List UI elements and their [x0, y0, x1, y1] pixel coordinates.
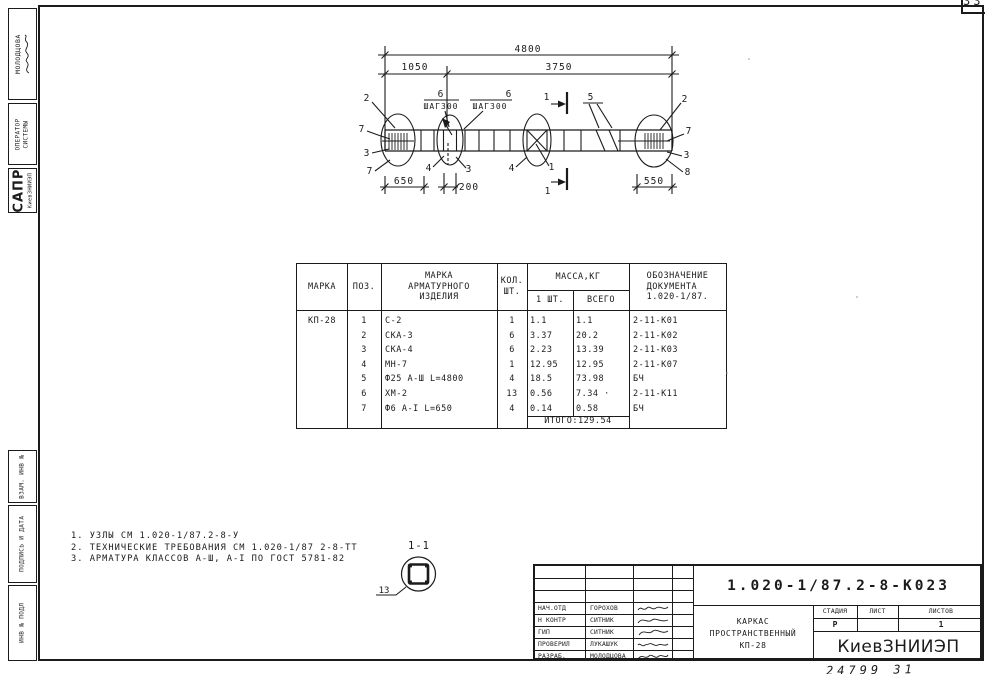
col-header-massa-vsego: ВСЕГО — [573, 290, 629, 310]
notes-block: 1. УЗЛЫ СМ 1.020-1/87.2-8-У 2. ТЕХНИЧЕСК… — [71, 531, 358, 566]
signature-scribble — [634, 626, 672, 638]
col-kol-values: 166 1413 4 — [497, 314, 527, 416]
step-note-1: ШАГ300 — [424, 102, 459, 111]
callout-7-right: 7 — [686, 126, 693, 137]
corner-box-hline — [961, 12, 985, 14]
bar-diagonals — [596, 130, 618, 151]
stamp-sapr-org: КиевЗНИИЭП — [27, 168, 34, 212]
sig-role: ГИП — [535, 626, 588, 638]
dim-text-200: 200 — [459, 182, 479, 193]
col-poz-values: 123 456 7 — [347, 314, 381, 416]
callout-7-left: 7 — [359, 124, 366, 135]
stamp-podpis-label: ПОДПИСЬ И ДАТА — [19, 516, 27, 572]
col-header-massa: МАССА,КГ — [527, 264, 629, 290]
callout-4b: 4 — [509, 163, 516, 174]
note-line: 1. УЗЛЫ СМ 1.020-1/87.2-8-У — [71, 531, 358, 543]
stamp-inv-label: ИНВ № ПОДЛ — [19, 603, 27, 643]
header-stage: СТАДИЯ — [813, 605, 857, 618]
callout-5: 5 — [588, 92, 595, 103]
sig-role: НАЧ.ОТД — [535, 602, 588, 614]
sig-name: ГОРОХОВ — [587, 602, 636, 614]
signature-scribble — [634, 614, 672, 626]
cell-marka-value: КП-28 — [299, 314, 345, 329]
scan-speck — [856, 296, 858, 298]
detail-oval-clamp — [437, 115, 463, 165]
col-header-doc: ОБОЗНАЧЕНИЕ ДОКУМЕНТА 1.020-1/87. — [629, 264, 726, 310]
callout-3-right: 3 — [684, 150, 691, 161]
clamp-symbol — [442, 118, 457, 164]
scan-speck — [726, 372, 728, 374]
signature-scribble — [634, 650, 672, 662]
spiral-hatch-right — [618, 133, 670, 149]
stamp-operator-line1: ОПЕРАТОР — [15, 118, 23, 150]
sig-name: СИТНИК — [587, 626, 636, 638]
callout-3b: 3 — [466, 164, 473, 175]
stage-value: Р — [813, 618, 857, 631]
sheet-number: 33 — [963, 0, 983, 8]
callout-3-left: 3 — [364, 148, 371, 159]
dim-text-4800: 4800 — [515, 44, 542, 55]
callout-13: 13 — [379, 586, 390, 596]
sheets-value: 1 — [898, 618, 984, 631]
stamp-box-author: МОЛОДЦОВА — [8, 8, 37, 100]
stamp-box-vzam-inv: ВЗАМ. ИНВ № — [8, 450, 37, 503]
callout-4a: 4 — [426, 163, 433, 174]
stamp-vzam-label: ВЗАМ. ИНВ № — [19, 454, 27, 498]
section-label-bottom: 1 — [545, 186, 552, 197]
sig-name: ЛУКАШУК — [587, 638, 636, 650]
callout-6b: 6 — [506, 89, 513, 100]
handwritten-archive-number: 24799 31 — [826, 662, 916, 674]
callout-2-left: 2 — [364, 93, 371, 104]
section-label-top: 1 — [544, 92, 551, 103]
col-massav-values: 1.120.213.39 12.9573.987.34 · 0.58 — [576, 314, 629, 416]
drawing-sheet: 33 МОЛОДЦОВА ОПЕРАТОР СИСТЕМЫ САПР КиевЗ… — [0, 0, 991, 674]
drawing-title: КАРКАС ПРОСТРАНСТВЕННЫЙ КП-28 — [693, 605, 813, 662]
signature-scribble — [23, 34, 32, 74]
callout-2-right: 2 — [682, 94, 689, 105]
col-header-izdeliye: МАРКА АРМАТУРНОГО ИЗДЕЛИЯ — [381, 264, 497, 310]
signature-scribble — [634, 638, 672, 650]
beam-elevation-drawing: 4800 1050 3750 650 200 550 6 ШАГ300 6 ША… — [340, 28, 780, 213]
document-number: 1.020-1/87.2-8-К023 — [693, 566, 984, 605]
organization-logo: КиевЗНИИЭП — [813, 631, 984, 662]
callout-8-right: 8 — [685, 167, 692, 178]
note-line: 2. ТЕХНИЧЕСКИЕ ТРЕБОВАНИЯ СМ 1.020-1/87 … — [71, 543, 358, 555]
stamp-box-inv-podl: ИНВ № ПОДЛ — [8, 585, 37, 661]
header-sheets: ЛИСТОВ — [898, 605, 984, 618]
dim-text-650: 650 — [394, 176, 414, 187]
callout-6a: 6 — [438, 89, 445, 100]
col-header-massa-1sht: 1 ШТ. — [527, 290, 573, 310]
sig-role: ПРОВЕРИЛ — [535, 638, 588, 650]
callout-1b: 1 — [549, 162, 556, 173]
col-header-kol: КОЛ. ШТ. — [497, 264, 527, 310]
detail-circle — [402, 557, 436, 591]
col-doc-values: 2-11-К012-11-К022-11-К03 2-11-К07БЧ2-11-… — [633, 314, 726, 416]
dim-text-3750: 3750 — [546, 62, 573, 73]
section-detail-1-1: 1-1 13 — [368, 536, 440, 604]
signature-scribble — [634, 602, 672, 614]
col-header-poz: ПОЗ. — [347, 264, 381, 310]
stamp-sapr-label: САПР — [11, 168, 27, 212]
header-sheet: ЛИСТ — [857, 605, 898, 618]
col-izdeliye-values: С-2СКА-3СКА-4 МН-7Ф25 А-Ш L=4800ХМ-2 Ф6 … — [385, 314, 497, 416]
stamp-author-name: МОЛОДЦОВА — [13, 34, 21, 74]
sig-role: Н КОНТР — [535, 614, 588, 626]
section-cut-top — [551, 92, 567, 114]
title-block: НАЧ.ОТД Н КОНТР ГИП ПРОВЕРИЛ РАЗРАБ. ГОР… — [533, 564, 982, 660]
sig-name: МОЛОДЦОВА — [587, 650, 636, 662]
dim-text-550: 550 — [644, 176, 664, 187]
dim-200 — [438, 173, 460, 194]
cross-symbol — [527, 130, 547, 151]
spec-table: МАРКА ПОЗ. МАРКА АРМАТУРНОГО ИЗДЕЛИЯ КОЛ… — [296, 263, 727, 429]
col-header-marka: МАРКА — [297, 264, 347, 310]
sheet-value — [857, 618, 898, 631]
section-title: 1-1 — [408, 540, 430, 552]
col-massa1-values: 1.13.372.23 12.9518.50.56 0.14 — [530, 314, 573, 416]
stamp-box-operator: ОПЕРАТОР СИСТЕМЫ — [8, 103, 37, 165]
scan-speck — [748, 58, 750, 60]
stamp-box-podpis-data: ПОДПИСЬ И ДАТА — [8, 505, 37, 583]
sig-name: СИТНИК — [587, 614, 636, 626]
stamp-operator-line2: СИСТЕМЫ — [23, 118, 31, 150]
beam-body — [385, 130, 672, 151]
callout-7b-left: 7 — [367, 166, 374, 177]
dim-text-1050: 1050 — [402, 62, 429, 73]
note-line: 3. АРМАТУРА КЛАССОВ А-Ш, А-I ПО ГОСТ 578… — [71, 554, 358, 566]
sig-role: РАЗРАБ. — [535, 650, 588, 662]
step-note-2: ШАГ300 — [473, 102, 508, 111]
stamp-box-sapr: САПР КиевЗНИИЭП — [8, 168, 37, 213]
table-total: ИТОГО:129.54 — [527, 416, 629, 427]
corner-bar-dots — [410, 565, 428, 583]
spiral-hatch-left — [382, 133, 414, 150]
